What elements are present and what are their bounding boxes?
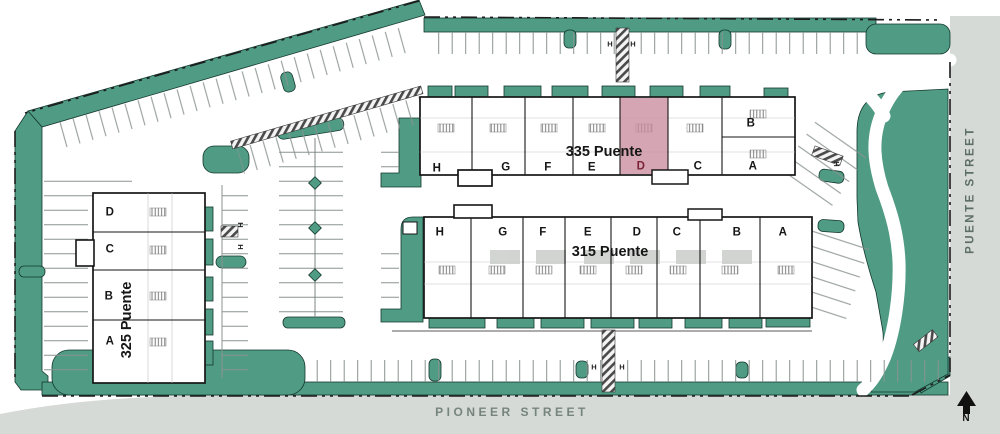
building-name-315: 315 Puente [572, 245, 649, 260]
handicap-marker: H [591, 363, 596, 371]
unit-label-325-c: C [106, 244, 115, 256]
unit-label-335-e: E [588, 162, 596, 174]
unit-label-315-f: F [539, 227, 547, 239]
street-label-pioneer: PIONEER STREET [435, 406, 589, 418]
building-335 [420, 97, 795, 186]
unit-label-335-g: G [501, 162, 510, 174]
unit-label-315-c: C [673, 227, 682, 239]
unit-label-315-g: G [498, 227, 507, 239]
handicap-marker: H [607, 40, 612, 48]
unit-label-315-a: A [779, 227, 788, 239]
site-plan: 335 Puente 315 Puente 325 Puente H G F E… [0, 0, 1000, 434]
building-315 [403, 205, 812, 318]
unit-label-335-a: A [749, 161, 758, 173]
handicap-marker: H [619, 363, 624, 371]
building-name-325: 325 Puente [120, 282, 135, 359]
building-325 [76, 193, 205, 383]
street-label-puente: PUENTE STREET [965, 126, 977, 254]
site-plan-drawing [0, 0, 1000, 434]
north-label: N [962, 414, 969, 424]
building-name-335: 335 Puente [566, 145, 643, 160]
unit-label-325-b: B [105, 291, 114, 303]
unit-label-315-d: D [633, 227, 642, 239]
unit-label-315-e: E [584, 227, 592, 239]
unit-label-325-d: D [106, 207, 115, 219]
unit-label-335-f: F [544, 162, 552, 174]
unit-label-315-h: H [436, 227, 445, 239]
unit-label-325-a: A [106, 336, 115, 348]
unit-label-335-d[interactable]: D [637, 161, 646, 173]
unit-label-335-b: B [747, 118, 756, 130]
unit-label-315-b: B [733, 227, 742, 239]
handicap-marker: H [236, 244, 244, 249]
unit-label-335-h: H [433, 163, 442, 175]
handicap-marker: H [236, 222, 244, 227]
unit-label-335-c: C [694, 161, 703, 173]
handicap-marker: H [630, 40, 635, 48]
handicap-marker: H [832, 161, 840, 166]
